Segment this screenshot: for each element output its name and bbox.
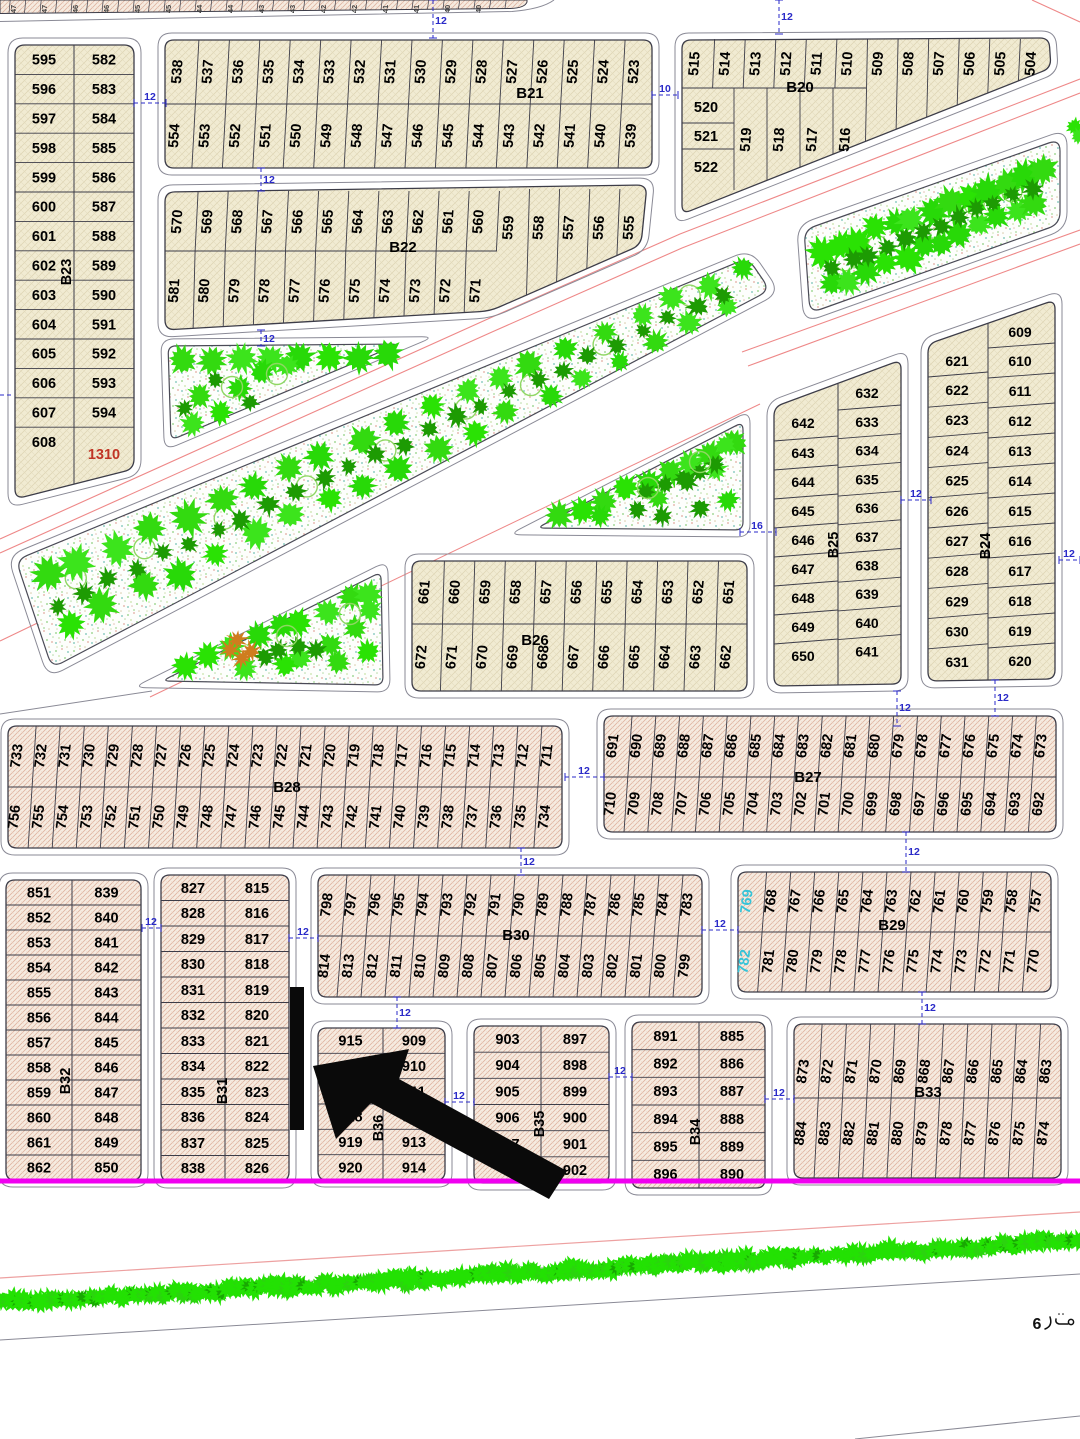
svg-text:505: 505 [992,51,1010,76]
svg-text:12: 12 [614,1065,626,1077]
svg-text:553: 553 [196,123,214,148]
svg-text:B26: B26 [521,632,549,649]
svg-text:602: 602 [32,259,56,275]
svg-text:528: 528 [473,59,491,84]
svg-text:761: 761 [931,889,950,915]
svg-text:572: 572 [437,278,455,303]
svg-text:828: 828 [181,906,205,922]
svg-text:830: 830 [181,957,205,973]
svg-text:620: 620 [1008,653,1032,669]
svg-text:823: 823 [245,1085,269,1101]
svg-text:765: 765 [834,889,853,915]
svg-text:852: 852 [27,911,51,927]
svg-text:537: 537 [199,59,217,84]
svg-text:733: 733 [8,743,27,769]
svg-text:726: 726 [177,743,196,769]
svg-text:824: 824 [245,1110,269,1126]
svg-text:516: 516 [837,127,855,152]
svg-text:788: 788 [558,892,577,918]
svg-text:609: 609 [1008,324,1032,340]
svg-text:582: 582 [92,53,116,69]
svg-text:547: 547 [379,123,397,148]
svg-text:12: 12 [263,333,275,345]
svg-text:12: 12 [523,856,535,868]
svg-text:B24: B24 [978,533,994,560]
svg-text:778: 778 [832,949,851,975]
svg-text:680: 680 [865,733,884,759]
svg-text:655: 655 [598,579,616,605]
svg-text:728: 728 [128,743,147,769]
svg-text:910: 910 [402,1059,426,1075]
svg-text:747: 747 [222,804,241,830]
svg-text:716: 716 [417,743,436,769]
svg-text:561: 561 [440,209,458,234]
svg-text:606: 606 [32,376,56,392]
svg-text:905: 905 [495,1084,519,1100]
svg-text:B28: B28 [273,779,301,796]
svg-text:889: 889 [720,1140,744,1156]
svg-text:811: 811 [387,953,406,978]
svg-text:563: 563 [380,209,398,234]
svg-text:560: 560 [470,209,488,234]
svg-text:909: 909 [402,1034,426,1050]
svg-text:626: 626 [945,503,969,519]
svg-text:851: 851 [27,886,51,902]
svg-text:822: 822 [245,1059,269,1075]
svg-text:548: 548 [348,123,366,148]
svg-text:6: 6 [1033,1316,1042,1333]
svg-text:846: 846 [94,1061,118,1077]
svg-text:855: 855 [27,986,51,1002]
svg-text:785: 785 [630,892,649,918]
svg-text:621: 621 [945,353,969,369]
svg-text:12: 12 [781,11,793,23]
svg-text:618: 618 [1008,593,1032,609]
svg-text:692: 692 [1030,791,1049,817]
svg-text:517: 517 [804,127,822,152]
svg-text:769: 769 [738,889,757,915]
svg-text:601: 601 [32,229,56,245]
svg-text:41: 41 [381,5,390,13]
svg-text:831: 831 [181,983,205,999]
svg-text:759: 759 [979,889,998,915]
svg-text:706: 706 [697,791,716,817]
svg-text:12: 12 [263,174,275,186]
svg-text:807: 807 [483,953,502,979]
svg-text:603: 603 [32,288,56,304]
svg-text:511: 511 [808,51,826,75]
svg-text:878: 878 [937,1120,956,1146]
svg-text:815: 815 [245,881,269,897]
svg-text:612: 612 [1008,413,1032,429]
svg-text:568: 568 [229,209,247,234]
svg-text:836: 836 [181,1110,205,1126]
svg-text:701: 701 [815,791,834,817]
svg-text:864: 864 [1012,1058,1031,1084]
svg-text:625: 625 [945,473,969,489]
svg-text:12: 12 [997,692,1009,704]
svg-text:730: 730 [80,743,99,769]
svg-text:667: 667 [565,644,583,670]
svg-text:764: 764 [858,889,877,915]
svg-text:809: 809 [435,953,454,979]
svg-text:876: 876 [986,1120,1005,1146]
svg-text:538: 538 [169,59,187,84]
svg-text:887: 887 [720,1084,744,1100]
svg-text:542: 542 [531,123,549,148]
svg-text:641: 641 [855,644,879,660]
svg-text:857: 857 [27,1036,51,1052]
svg-text:792: 792 [462,892,481,918]
svg-text:586: 586 [92,170,116,186]
svg-text:584: 584 [92,112,116,128]
svg-text:853: 853 [27,936,51,952]
svg-text:803: 803 [579,953,598,979]
svg-text:525: 525 [565,59,583,84]
svg-text:658: 658 [507,579,525,605]
svg-text:654: 654 [629,579,647,605]
svg-text:12: 12 [908,846,920,858]
svg-text:47: 47 [40,5,49,13]
svg-text:558: 558 [530,215,548,240]
svg-text:16: 16 [751,520,763,532]
svg-text:708: 708 [649,791,668,817]
svg-text:552: 552 [227,123,245,148]
svg-text:645: 645 [791,503,815,519]
svg-text:534: 534 [291,59,309,84]
svg-text:862: 862 [27,1161,51,1177]
svg-text:707: 707 [673,791,692,817]
svg-text:660: 660 [446,579,464,605]
svg-text:714: 714 [466,743,485,769]
svg-text:745: 745 [270,804,289,830]
svg-text:915: 915 [338,1034,362,1050]
svg-text:888: 888 [720,1112,744,1128]
svg-text:596: 596 [32,82,56,98]
svg-text:B32: B32 [58,1068,74,1095]
svg-text:506: 506 [961,51,979,76]
svg-text:B22: B22 [389,239,417,256]
svg-text:697: 697 [911,791,930,817]
svg-text:656: 656 [568,579,586,605]
svg-text:687: 687 [699,733,718,759]
svg-text:699: 699 [863,791,882,817]
svg-text:536: 536 [230,59,248,84]
svg-text:570: 570 [169,209,187,234]
svg-text:804: 804 [555,953,574,979]
svg-text:599: 599 [32,170,56,186]
svg-text:737: 737 [463,804,482,830]
svg-text:718: 718 [369,743,388,769]
svg-text:859: 859 [27,1086,51,1102]
svg-text:556: 556 [590,215,608,240]
svg-text:610: 610 [1008,353,1032,369]
svg-text:749: 749 [174,804,193,830]
svg-text:827: 827 [181,881,205,897]
svg-text:777: 777 [856,949,875,975]
svg-text:617: 617 [1008,563,1032,579]
svg-text:738: 738 [439,804,458,830]
svg-text:772: 772 [976,949,995,975]
svg-text:784: 784 [654,892,673,918]
svg-text:670: 670 [474,644,492,670]
svg-text:679: 679 [889,733,908,759]
svg-text:753: 753 [78,804,97,830]
svg-text:589: 589 [92,259,116,275]
svg-text:794: 794 [414,892,433,918]
svg-text:590: 590 [92,288,116,304]
svg-text:657: 657 [538,579,556,605]
svg-text:723: 723 [249,743,268,769]
svg-text:646: 646 [791,532,815,548]
svg-text:756: 756 [5,804,24,830]
svg-text:750: 750 [150,804,169,830]
svg-text:604: 604 [32,317,56,333]
svg-text:B23: B23 [59,259,75,286]
svg-text:806: 806 [507,953,526,979]
svg-text:897: 897 [563,1032,587,1048]
svg-text:638: 638 [855,558,879,574]
svg-text:904: 904 [495,1058,519,1074]
svg-text:798: 798 [318,892,337,918]
svg-text:613: 613 [1008,443,1032,459]
svg-text:768: 768 [762,889,781,915]
svg-text:742: 742 [343,804,362,830]
svg-text:46: 46 [71,5,80,13]
svg-text:557: 557 [560,215,578,240]
svg-text:781: 781 [760,949,779,975]
svg-text:913: 913 [402,1135,426,1151]
svg-text:B25: B25 [826,532,842,559]
svg-text:531: 531 [382,59,400,84]
svg-text:868: 868 [915,1058,934,1084]
svg-text:883: 883 [816,1120,835,1146]
svg-text:705: 705 [720,791,739,817]
svg-text:892: 892 [653,1057,677,1073]
svg-text:841: 841 [94,936,118,952]
svg-text:524: 524 [595,59,613,84]
svg-text:B35: B35 [532,1111,548,1138]
svg-text:882: 882 [840,1120,859,1146]
svg-text:865: 865 [988,1058,1007,1084]
svg-text:825: 825 [245,1136,269,1152]
svg-text:871: 871 [842,1058,861,1084]
svg-text:739: 739 [415,804,434,830]
svg-text:736: 736 [487,804,506,830]
svg-text:12: 12 [773,1087,785,1099]
svg-text:810: 810 [411,953,430,979]
svg-text:786: 786 [606,892,625,918]
svg-text:B30: B30 [502,927,530,944]
svg-text:43: 43 [288,5,297,13]
svg-text:818: 818 [245,957,269,973]
svg-text:833: 833 [181,1034,205,1050]
svg-text:821: 821 [245,1034,269,1050]
svg-text:B36: B36 [371,1115,387,1142]
svg-text:614: 614 [1008,473,1032,489]
svg-text:579: 579 [226,278,244,303]
svg-text:712: 712 [514,743,533,769]
svg-text:529: 529 [443,59,461,84]
svg-text:838: 838 [181,1161,205,1177]
svg-text:585: 585 [92,141,116,157]
svg-text:858: 858 [27,1061,51,1077]
svg-text:12: 12 [910,488,922,500]
svg-text:555: 555 [621,215,639,240]
svg-text:45: 45 [133,5,142,13]
svg-text:741: 741 [367,804,386,830]
svg-text:879: 879 [913,1120,932,1146]
svg-text:763: 763 [882,889,901,915]
svg-text:874: 874 [1034,1120,1053,1146]
svg-text:636: 636 [855,500,879,516]
svg-text:587: 587 [92,200,116,216]
svg-text:863: 863 [1037,1058,1056,1084]
svg-text:607: 607 [32,406,56,422]
svg-text:722: 722 [273,743,292,769]
svg-text:702: 702 [792,791,811,817]
svg-text:611: 611 [1009,383,1032,399]
svg-text:774: 774 [928,949,947,975]
svg-text:678: 678 [913,733,932,759]
svg-text:881: 881 [864,1120,883,1146]
svg-text:630: 630 [945,624,969,640]
svg-text:872: 872 [818,1058,837,1084]
svg-text:744: 744 [295,804,314,830]
svg-text:10: 10 [659,83,671,95]
svg-text:914: 914 [402,1160,426,1176]
svg-text:649: 649 [791,619,815,635]
svg-text:703: 703 [768,791,787,817]
svg-text:504: 504 [1022,51,1040,76]
svg-text:632: 632 [855,385,879,401]
svg-text:885: 885 [720,1029,744,1045]
svg-text:45: 45 [164,5,173,13]
svg-text:554: 554 [166,123,184,148]
svg-text:791: 791 [486,892,505,918]
svg-text:893: 893 [653,1084,677,1100]
svg-text:569: 569 [199,209,217,234]
svg-text:850: 850 [94,1161,118,1177]
svg-text:509: 509 [869,51,887,76]
svg-text:507: 507 [931,51,949,76]
svg-text:800: 800 [651,953,670,979]
svg-text:44: 44 [226,4,235,13]
svg-text:758: 758 [1003,889,1022,915]
svg-text:12: 12 [924,1002,936,1014]
svg-text:541: 541 [562,123,580,148]
svg-text:546: 546 [409,123,427,148]
svg-text:573: 573 [407,278,425,303]
svg-text:684: 684 [770,733,789,759]
svg-text:615: 615 [1008,503,1032,519]
svg-text:519: 519 [738,127,756,152]
svg-text:543: 543 [501,123,519,148]
svg-text:849: 849 [94,1136,118,1152]
svg-text:619: 619 [1008,623,1032,639]
svg-text:B34: B34 [688,1119,704,1146]
svg-text:891: 891 [653,1029,677,1045]
svg-text:686: 686 [723,733,742,759]
svg-text:754: 754 [54,804,73,830]
svg-text:623: 623 [945,412,969,428]
svg-text:704: 704 [744,791,763,817]
svg-text:532: 532 [352,59,370,84]
svg-text:870: 870 [867,1058,886,1084]
svg-text:795: 795 [390,892,409,918]
svg-text:877: 877 [961,1120,980,1146]
svg-text:666: 666 [595,644,613,670]
svg-text:12: 12 [899,702,911,714]
svg-text:884: 884 [791,1120,810,1146]
svg-text:820: 820 [245,1008,269,1024]
svg-text:12: 12 [714,918,726,930]
svg-text:844: 844 [94,1011,118,1027]
svg-text:633: 633 [855,414,879,430]
svg-text:567: 567 [259,209,277,234]
svg-text:845: 845 [94,1036,118,1052]
svg-text:577: 577 [286,278,304,303]
svg-text:631: 631 [945,654,969,670]
svg-text:627: 627 [945,533,969,549]
svg-text:920: 920 [338,1160,362,1176]
svg-text:693: 693 [1006,791,1025,817]
svg-text:775: 775 [904,949,923,975]
svg-text:595: 595 [32,53,56,69]
svg-text:837: 837 [181,1136,205,1152]
svg-text:669: 669 [504,644,522,670]
svg-text:662: 662 [717,644,735,670]
svg-text:735: 735 [511,804,530,830]
svg-text:713: 713 [490,743,509,769]
svg-text:854: 854 [27,961,51,977]
svg-text:539: 539 [622,123,640,148]
svg-text:521: 521 [694,129,718,145]
svg-text:757: 757 [1027,889,1046,915]
svg-text:562: 562 [410,209,428,234]
svg-text:748: 748 [198,804,217,830]
svg-text:650: 650 [791,648,815,664]
svg-text:575: 575 [346,278,364,303]
svg-text:514: 514 [717,51,735,76]
svg-text:869: 869 [891,1058,910,1084]
svg-text:898: 898 [563,1058,587,1074]
svg-text:664: 664 [656,644,674,670]
svg-text:734: 734 [535,804,554,830]
svg-text:594: 594 [92,406,116,422]
svg-text:510: 510 [839,51,857,76]
svg-text:689: 689 [651,733,670,759]
svg-text:677: 677 [937,733,956,759]
svg-text:622: 622 [945,382,969,398]
svg-text:635: 635 [855,471,879,487]
svg-text:647: 647 [791,561,815,577]
svg-text:867: 867 [939,1058,958,1084]
svg-text:639: 639 [855,586,879,602]
svg-text:46: 46 [102,5,111,13]
svg-text:598: 598 [32,141,56,157]
svg-text:571: 571 [467,278,485,303]
svg-text:41: 41 [412,5,421,13]
svg-text:771: 771 [1000,949,1019,975]
svg-text:688: 688 [675,733,694,759]
svg-text:12: 12 [145,916,157,928]
svg-text:682: 682 [818,733,837,759]
svg-text:527: 527 [504,59,522,84]
svg-text:583: 583 [92,82,116,98]
svg-text:732: 732 [32,743,51,769]
svg-text:717: 717 [393,743,412,769]
